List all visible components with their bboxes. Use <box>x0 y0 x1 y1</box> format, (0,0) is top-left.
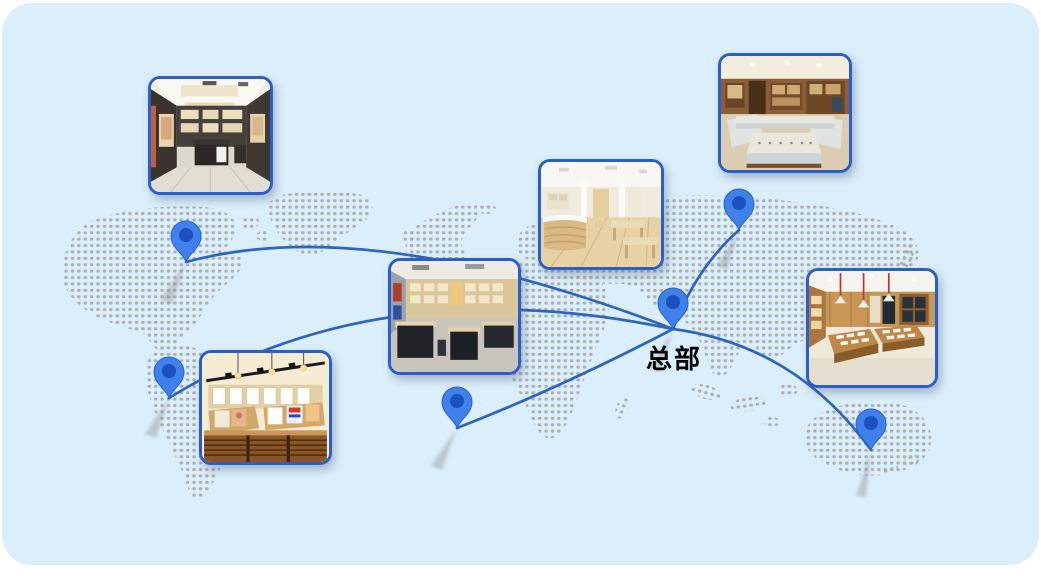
store-photo-center-image <box>541 162 661 267</box>
store-photo-center <box>538 159 664 270</box>
region-iceland <box>478 204 496 214</box>
region-north-america <box>62 206 244 350</box>
store-photo-top-left <box>148 76 273 195</box>
region-arctic-islands <box>241 215 259 229</box>
store-network-map: 总部 <box>0 0 1041 576</box>
region-greenland <box>268 192 373 255</box>
region-southeast-asia <box>778 384 798 396</box>
region-southeast-asia <box>689 381 724 403</box>
store-photo-top-right <box>718 53 852 173</box>
region-madagascar <box>613 396 632 421</box>
pin-west-africa-icon <box>442 387 472 428</box>
store-photo-right-image <box>809 271 935 385</box>
store-photo-middle <box>388 258 521 375</box>
store-photo-middle-image <box>391 261 518 372</box>
store-photo-bottom-left-image <box>202 353 329 462</box>
store-photo-right <box>806 268 938 388</box>
region-arctic-islands <box>256 231 270 241</box>
region-southeast-asia <box>729 395 767 414</box>
store-photo-bottom-left <box>199 350 332 465</box>
region-southeast-asia <box>764 417 780 427</box>
store-photo-top-left-image <box>151 79 270 192</box>
pin-headquarters-icon <box>658 288 688 329</box>
hub-label: 总部 <box>636 339 712 376</box>
store-photo-top-right-image <box>721 56 849 170</box>
